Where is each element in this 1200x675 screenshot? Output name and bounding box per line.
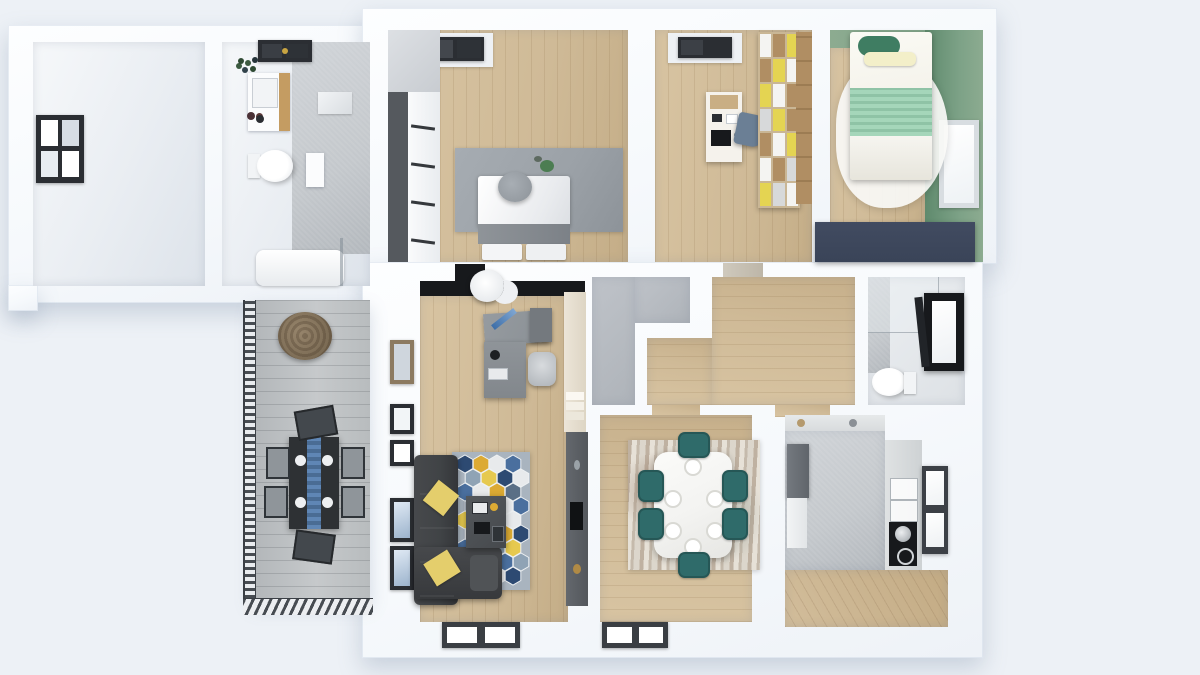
kitchen-left-counter (787, 498, 807, 548)
kitchen-burner (897, 548, 914, 565)
study-cube-shelf-wood-side (796, 32, 812, 204)
kitchen-top-counter (785, 415, 885, 431)
outdoor-head-chair-bottom (292, 529, 336, 564)
bathroom-vanity (248, 73, 290, 131)
vanity-accessory (256, 113, 263, 120)
bedroom1-upper-cabinet (388, 30, 440, 92)
bathtub (256, 250, 344, 286)
west-window-3 (390, 440, 414, 466)
bedroom1-wardrobe-side (388, 92, 408, 262)
tv-shelf-item (573, 564, 581, 574)
outdoor-chair-right-2 (341, 486, 365, 518)
glass-canister-2 (890, 500, 918, 522)
bedroom1-wardrobe-front (408, 92, 440, 262)
bedroom2-bed (850, 32, 932, 180)
rattan-chair (278, 312, 332, 360)
study-cube-shelf (758, 32, 800, 208)
left-wing-corner-step (8, 285, 38, 311)
closet-floor-left (592, 277, 635, 405)
floorplan-render (0, 0, 1200, 675)
dining-chair-right-1 (722, 470, 748, 502)
balcony-railing-bottom (243, 598, 373, 615)
bedroom1-decor-plant (540, 160, 554, 172)
bathroom-small-open-window (918, 293, 964, 371)
kitchen-window (922, 466, 948, 554)
kitchen-right-counter (885, 440, 922, 570)
west-window-1 (390, 340, 414, 384)
desk-item-round (490, 350, 500, 360)
desk-papers (488, 368, 508, 380)
plate (664, 522, 682, 540)
kitchen-sink-bowl (895, 526, 911, 542)
plate (664, 490, 682, 508)
outdoor-chair-left-2 (264, 486, 288, 518)
bathroom-small-toilet (872, 366, 918, 400)
outdoor-chair-right-1 (341, 447, 365, 479)
bedroom1-round-pouf (498, 172, 532, 202)
bathroom-skylight-window (258, 40, 312, 62)
coffee-table-bowl (490, 503, 498, 511)
bathroom-accessories (247, 112, 255, 120)
outdoor-table (289, 437, 339, 529)
tv-screen (570, 502, 583, 530)
vanity-wood-side (279, 73, 290, 131)
shower-glass-panel (340, 238, 343, 286)
hallway-floor-ell (647, 338, 712, 405)
coffee-table-book (492, 526, 504, 542)
kitchen-fridge (787, 444, 809, 498)
bathroom-main-tile-wall (292, 42, 370, 254)
dining-chair-top (678, 432, 710, 458)
office-chair (528, 352, 556, 386)
dining-chair-right-2 (722, 508, 748, 540)
glass-canister-1 (890, 478, 918, 500)
kitchen-wood-floor (785, 570, 948, 627)
plate (322, 455, 333, 466)
bathroom-wall-niche (306, 153, 324, 187)
west-window-4 (390, 498, 414, 542)
sofa-chaise-cushion (470, 555, 498, 591)
outdoor-chair-left-1 (266, 447, 290, 479)
bathroom-light-recess (318, 92, 352, 114)
plate (322, 497, 333, 508)
coffee-table-magazine (472, 502, 488, 514)
hallway-floor (712, 277, 855, 405)
tall-cream-cabinet (564, 292, 586, 432)
living-sliding-window (442, 622, 520, 648)
bedroom2-pillow (864, 52, 916, 66)
table-runner (307, 437, 321, 529)
empty-room-window (36, 115, 84, 183)
dining-chair-left-2 (638, 508, 664, 540)
coffee-table (466, 496, 506, 548)
balcony-railing-left (243, 300, 256, 612)
dining-sliding-window (602, 622, 668, 648)
study-skylight-recess (668, 33, 742, 63)
bedroom2-navy-wardrobe (815, 222, 975, 262)
pillow-left (482, 244, 522, 260)
office-ceiling-lamp (470, 270, 504, 302)
bathroom-plant (238, 58, 244, 64)
plate (295, 455, 306, 466)
west-window-5 (390, 546, 414, 590)
dining-table (654, 452, 732, 558)
dining-chair-left-1 (638, 470, 664, 502)
plate (684, 458, 702, 476)
tv-shelf-item-2 (574, 460, 580, 470)
threshold-study (723, 263, 763, 277)
pillow-right (526, 244, 566, 260)
tv-partition (566, 432, 588, 606)
coffee-table-tray (474, 522, 490, 534)
vanity-sink (252, 78, 278, 108)
bathroom-toilet (248, 150, 294, 182)
plate (295, 497, 306, 508)
dining-chair-bottom (678, 552, 710, 578)
closet-floor-top (635, 277, 690, 323)
west-window-2 (390, 404, 414, 434)
kitchen-sink-panel (889, 522, 917, 566)
